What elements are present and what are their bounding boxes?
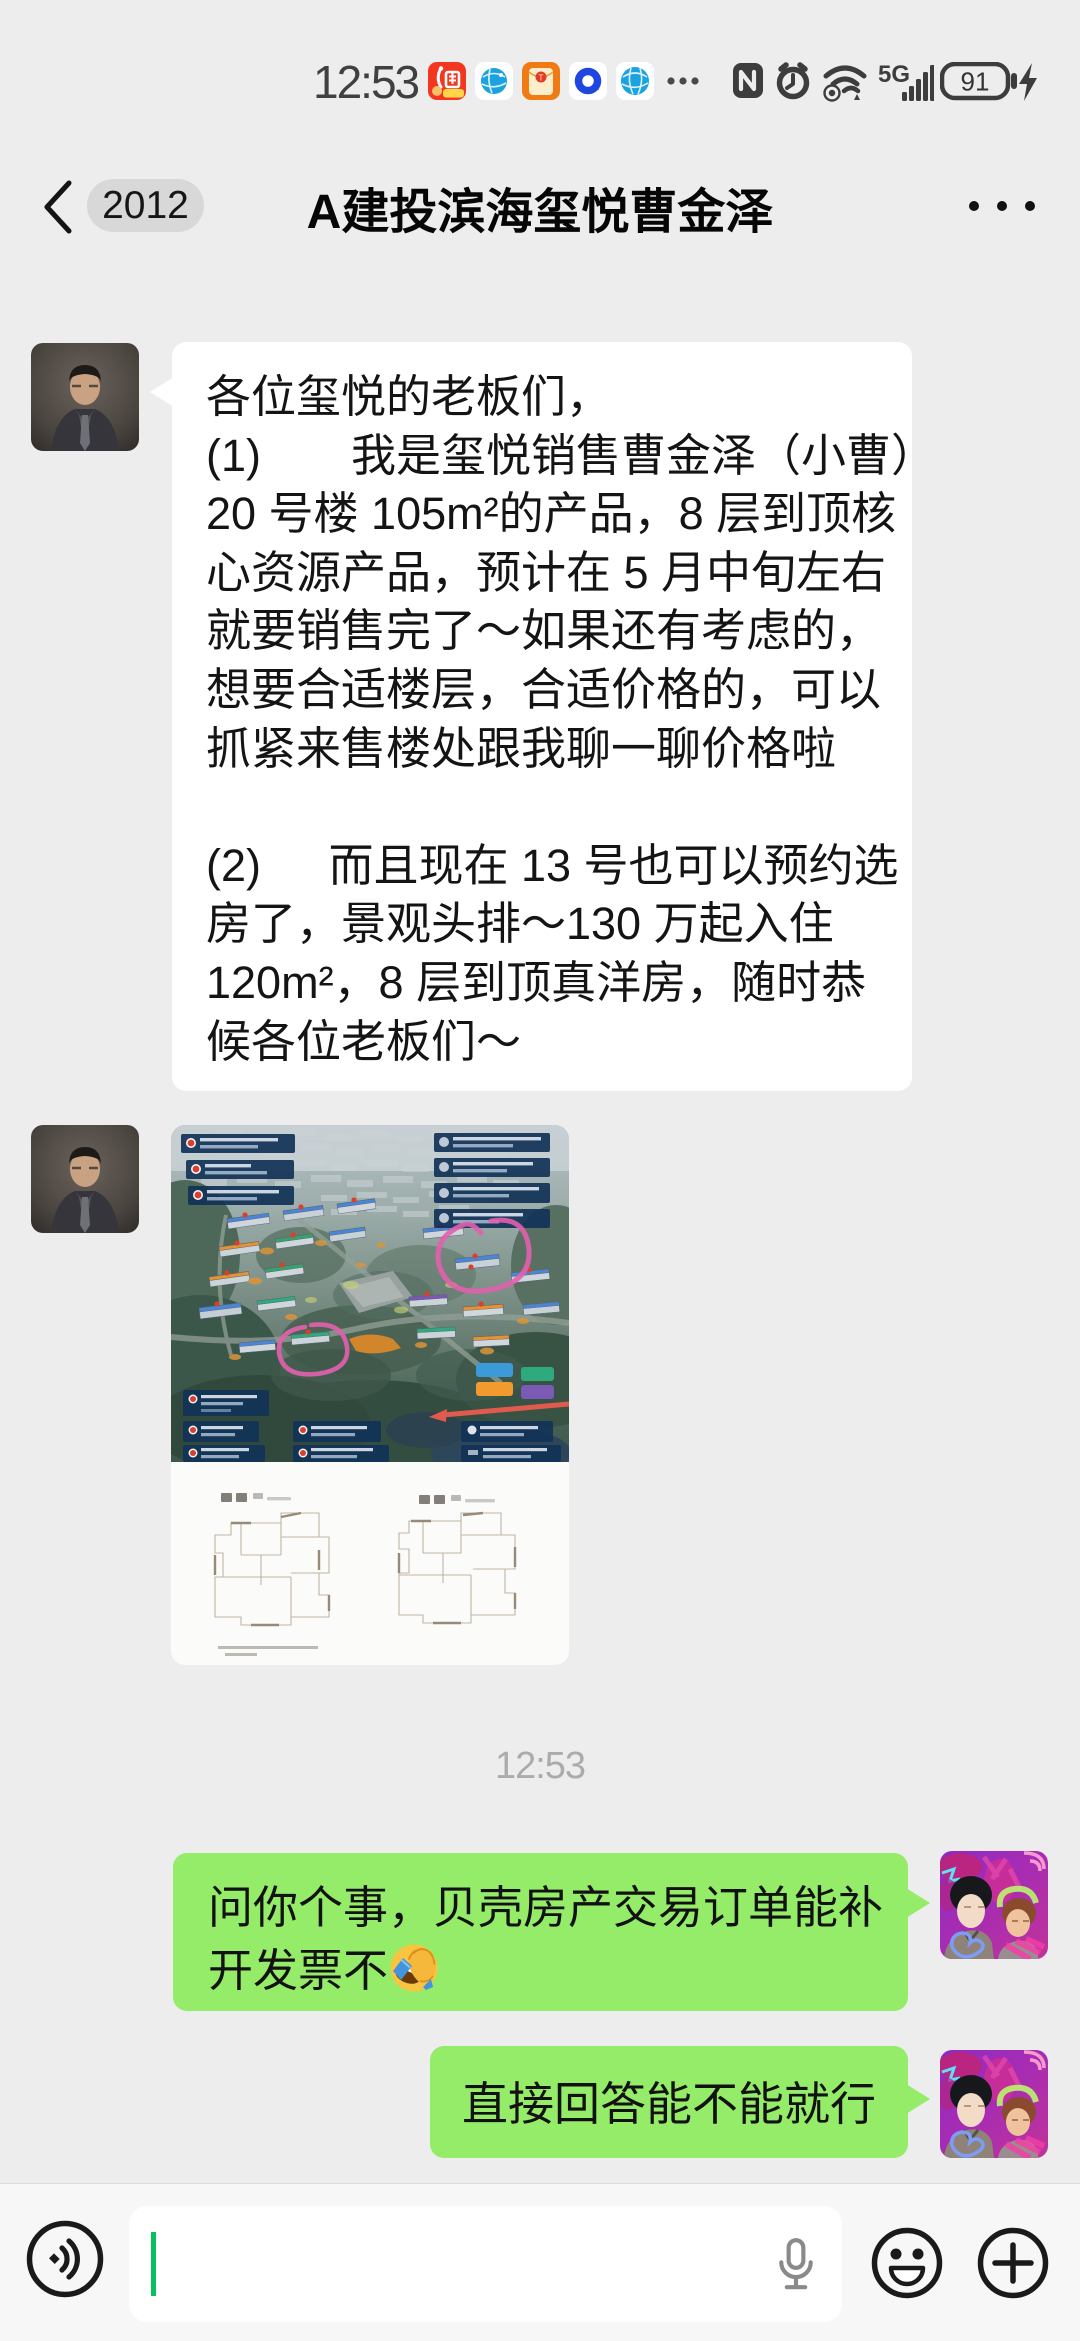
- svg-text:5G: 5G: [878, 61, 910, 88]
- svg-text:91: 91: [961, 67, 990, 97]
- svg-text:T: T: [539, 74, 544, 83]
